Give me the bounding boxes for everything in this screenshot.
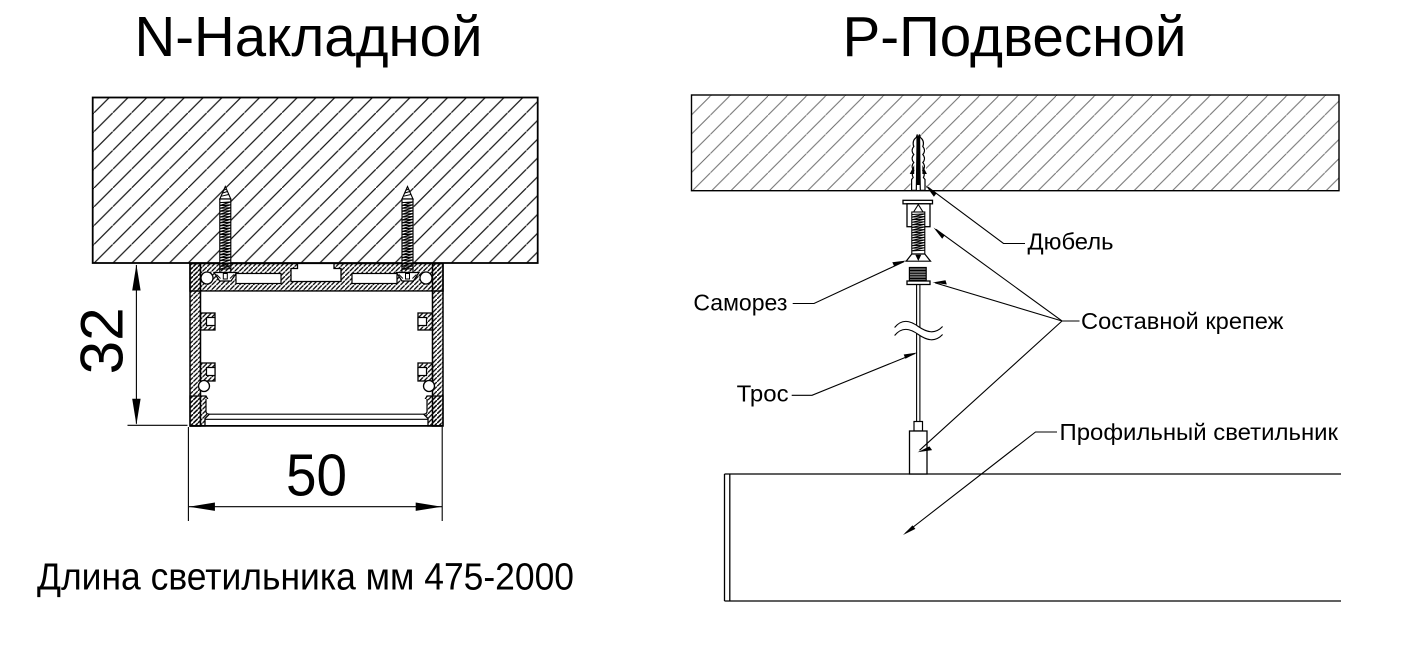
svg-text:Дюбель: Дюбель: [1028, 229, 1114, 255]
svg-text:Саморез: Саморез: [693, 289, 787, 315]
svg-text:Длина светильника мм 475-2000: Длина светильника мм 475-2000: [37, 557, 574, 599]
svg-text:50: 50: [286, 443, 347, 509]
svg-text:Трос: Трос: [737, 380, 789, 406]
svg-text:N-Накладной: N-Накладной: [135, 5, 483, 69]
svg-text:32: 32: [69, 307, 136, 374]
svg-text:Составной крепеж: Составной крепеж: [1081, 308, 1284, 334]
svg-text:Р-Подвесной: Р-Подвесной: [843, 5, 1187, 69]
svg-text:Профильный светильник: Профильный светильник: [1060, 419, 1339, 445]
